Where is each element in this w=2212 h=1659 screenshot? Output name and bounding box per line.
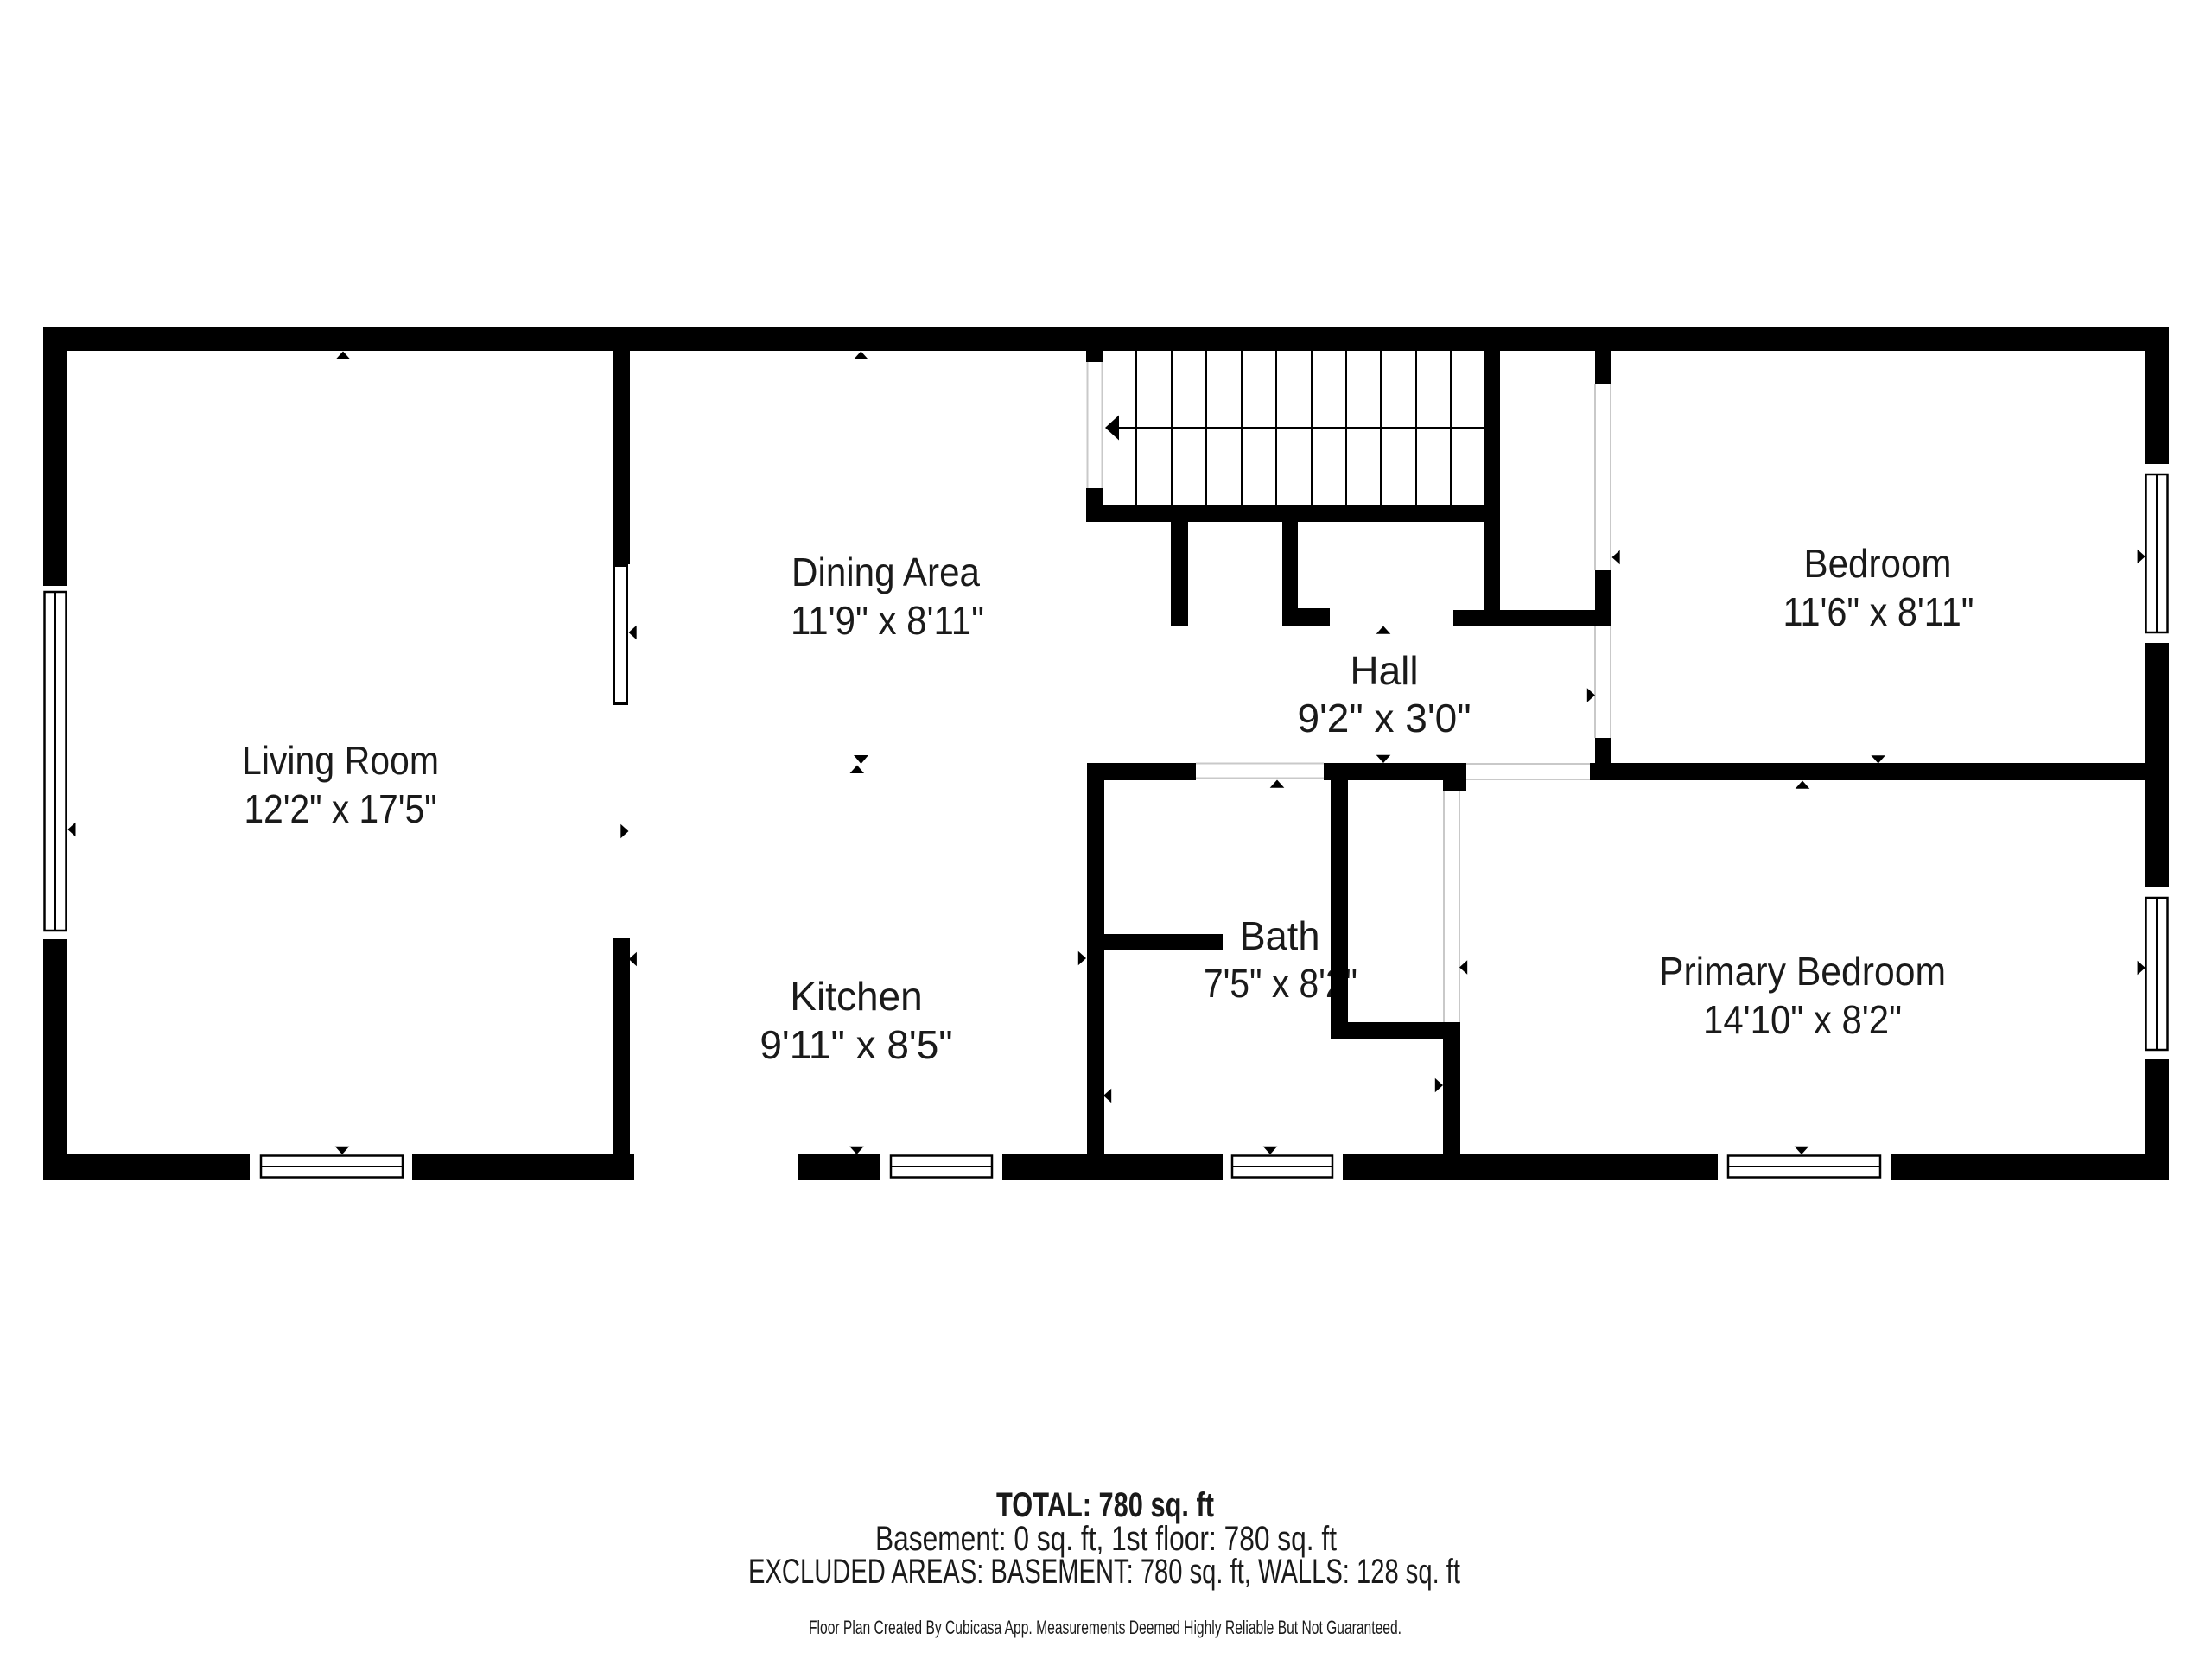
svg-text:11'9" x 8'11": 11'9" x 8'11" [791,598,984,643]
svg-text:Bath: Bath [1240,913,1320,958]
svg-text:12'2" x 17'5": 12'2" x 17'5" [245,786,437,831]
svg-text:Primary Bedroom: Primary Bedroom [1659,949,1946,994]
svg-text:Bedroom: Bedroom [1804,541,1952,586]
svg-text:14'10" x 8'2": 14'10" x 8'2" [1703,997,1902,1042]
svg-text:EXCLUDED AREAS: BASEMENT: 780: EXCLUDED AREAS: BASEMENT: 780 sq. ft, WA… [748,1553,1460,1591]
svg-text:Dining Area: Dining Area [791,550,980,594]
svg-text:Hall: Hall [1350,648,1418,693]
svg-text:Living Room: Living Room [242,738,439,783]
svg-text:9'11" x 8'5": 9'11" x 8'5" [760,1022,952,1067]
svg-text:TOTAL: 780 sq. ft: TOTAL: 780 sq. ft [996,1486,1214,1524]
svg-text:11'6" x 8'11": 11'6" x 8'11" [1783,589,1974,634]
svg-text:Floor Plan Created By Cubicasa: Floor Plan Created By Cubicasa App. Meas… [809,1617,1402,1638]
svg-text:Kitchen: Kitchen [790,974,922,1019]
svg-text:9'2" x 3'0": 9'2" x 3'0" [1297,696,1471,741]
